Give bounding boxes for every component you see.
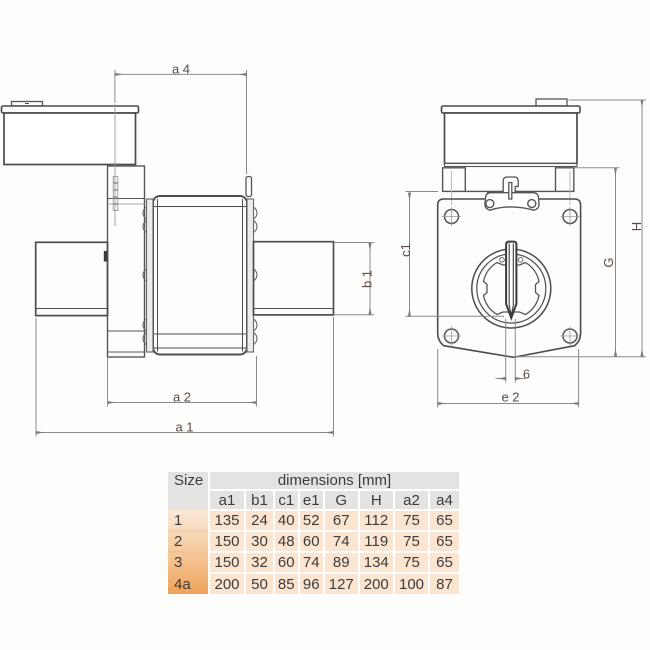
- svg-text:a 2: a 2: [173, 390, 191, 405]
- svg-text:G: G: [601, 257, 616, 267]
- svg-text:H: H: [629, 222, 644, 231]
- svg-text:a 1: a 1: [175, 420, 193, 435]
- svg-text:c1: c1: [398, 243, 413, 257]
- svg-text:a 4: a 4: [172, 62, 190, 77]
- svg-text:6: 6: [523, 367, 530, 382]
- svg-text:b 1: b 1: [360, 270, 375, 288]
- svg-text:e 2: e 2: [501, 390, 519, 405]
